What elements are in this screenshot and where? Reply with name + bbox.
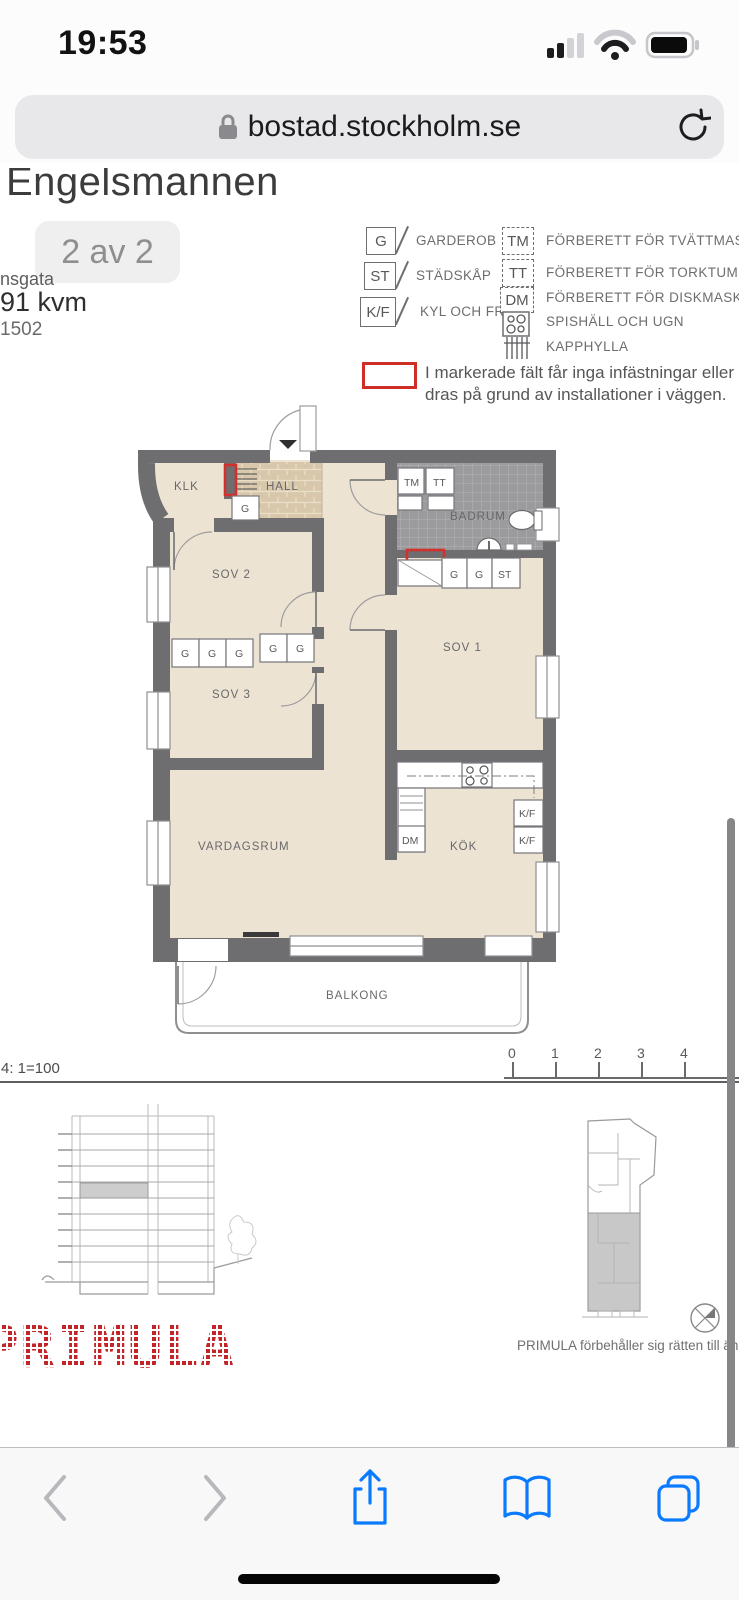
- svg-text:G: G: [296, 643, 304, 655]
- svg-text:G: G: [181, 648, 189, 660]
- entry-arrow-icon: [279, 440, 297, 449]
- share-button[interactable]: [340, 1468, 400, 1528]
- svg-text:TM: TM: [404, 477, 419, 489]
- svg-text:G: G: [475, 569, 483, 581]
- tabs-button[interactable]: [649, 1468, 709, 1528]
- svg-text:KÖK: KÖK: [450, 841, 477, 853]
- svg-text:DM: DM: [402, 835, 418, 847]
- svg-text:G: G: [208, 648, 216, 660]
- svg-text:VARDAGSRUM: VARDAGSRUM: [198, 841, 290, 853]
- clock: 19:53: [58, 24, 147, 63]
- slash-glyph: [395, 226, 409, 254]
- legend-label: KAPPHYLLA: [546, 339, 628, 354]
- status-icons: [545, 28, 705, 62]
- slash-glyph: [395, 297, 409, 325]
- legend-symbol-kylfrys: K/F: [360, 297, 396, 327]
- svg-text:G: G: [235, 648, 243, 660]
- scale-label: 4: 1=100: [1, 1060, 60, 1077]
- svg-text:BALKONG: BALKONG: [326, 990, 389, 1002]
- floor-plan: BALKONG: [130, 400, 570, 1040]
- tick: 0: [508, 1045, 516, 1061]
- apartment-number: 1502: [0, 319, 42, 341]
- battery-icon: [647, 33, 699, 57]
- frame-line: [0, 1081, 739, 1083]
- browser-chrome-top: bostad.stockholm.se: [0, 90, 739, 164]
- cellular-signal-icon: [547, 33, 584, 58]
- note-line1: I markerade fält får inga infästningar e…: [425, 363, 739, 383]
- entry-door: [270, 406, 316, 451]
- legend-label: SPISHÄLL OCH UGN: [546, 314, 684, 329]
- url-text: bostad.stockholm.se: [248, 110, 521, 144]
- reload-icon[interactable]: [675, 108, 711, 146]
- red-marking-sample: [362, 362, 417, 389]
- legend-symbol-tt: TT: [502, 259, 534, 287]
- logo-dot-grid: [0, 1313, 344, 1377]
- tree-sketch: [228, 1216, 256, 1256]
- svg-text:SOV 3: SOV 3: [212, 689, 251, 701]
- tick: 2: [594, 1045, 602, 1061]
- legend-symbol-stadskap: ST: [364, 262, 396, 290]
- svg-text:G: G: [241, 503, 249, 515]
- tick: 1: [551, 1045, 559, 1061]
- legend-symbol-dm: DM: [500, 287, 534, 313]
- key-plan-drawing: [568, 1113, 673, 1338]
- svg-text:SOV 2: SOV 2: [212, 569, 251, 581]
- apartment-area: 91 kvm: [0, 287, 87, 318]
- highlighted-floor: [80, 1183, 148, 1198]
- chevron-left-icon: [46, 1477, 64, 1519]
- svg-text:BADRUM: BADRUM: [450, 511, 506, 523]
- svg-text:HALL: HALL: [266, 481, 299, 493]
- legend-label: FÖRBERETT FÖR DISKMASKIN: [546, 290, 739, 305]
- address-bar[interactable]: bostad.stockholm.se: [15, 95, 724, 159]
- book-icon: [501, 1474, 553, 1522]
- compass-icon: [688, 1301, 722, 1335]
- svg-text:G: G: [269, 643, 277, 655]
- bench: [243, 932, 279, 937]
- svg-text:K/F: K/F: [519, 835, 535, 847]
- legend-label: FÖRBERETT FÖR TORKTUMLARE: [546, 265, 739, 280]
- page-indicator: 2 av 2: [35, 221, 180, 283]
- forward-button[interactable]: [185, 1468, 245, 1528]
- status-bar: 19:53: [0, 0, 739, 90]
- building-section-drawing: [40, 1098, 270, 1303]
- legend-symbol-tm: TM: [502, 227, 534, 255]
- wifi-icon: [597, 33, 633, 60]
- legend-label: FÖRBERETT FÖR TVÄTTMASKIN: [546, 233, 739, 248]
- scale-ruler: [504, 1077, 739, 1079]
- stove-icon: [502, 311, 530, 337]
- page-content: Engelsmannen 2 av 2 nsgata 91 kvm 1502 G…: [0, 163, 739, 1447]
- tick: 4: [680, 1045, 688, 1061]
- svg-text:TT: TT: [433, 477, 446, 489]
- page-title-wrap: Engelsmannen: [6, 168, 406, 210]
- legend-label: GARDEROB: [416, 233, 496, 248]
- svg-text:ST: ST: [498, 569, 512, 581]
- slash-glyph: [395, 261, 409, 289]
- home-indicator[interactable]: [238, 1574, 500, 1584]
- tabs-icon: [654, 1473, 704, 1523]
- legend-symbol-garderob: G: [366, 227, 396, 255]
- primula-logo: PRIMULA: [0, 1313, 344, 1377]
- disclaimer-text: PRIMULA förbehåller sig rätten till änd: [517, 1338, 739, 1353]
- share-icon: [347, 1469, 393, 1527]
- balcony: BALKONG: [176, 960, 528, 1033]
- chevron-right-icon: [206, 1477, 224, 1519]
- lock-icon: [218, 114, 238, 140]
- page-title: Engelsmannen: [6, 168, 406, 205]
- svg-text:G: G: [450, 569, 458, 581]
- svg-text:SOV 1: SOV 1: [443, 642, 482, 654]
- tick: 3: [637, 1045, 645, 1061]
- coat-rack-icon: [504, 335, 530, 361]
- svg-text:K/F: K/F: [519, 808, 535, 820]
- iphone-screen: 19:53: [0, 0, 739, 1600]
- svg-text:KLK: KLK: [174, 481, 199, 493]
- back-button[interactable]: [25, 1468, 85, 1528]
- bookmarks-button[interactable]: [497, 1468, 557, 1528]
- legend-label: STÄDSKÅP: [416, 268, 491, 283]
